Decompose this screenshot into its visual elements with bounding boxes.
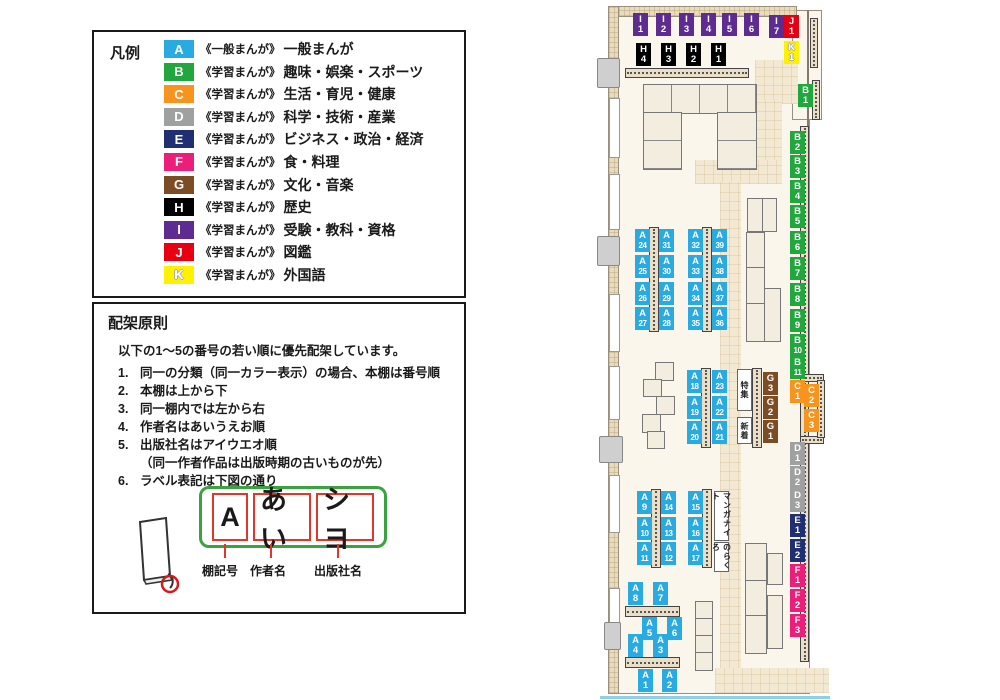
series-label: 《学習まんが》 [200,109,281,125]
shelf-block [745,580,767,617]
label-part-2: あい [253,493,311,541]
shelf-label-A10: A10 [637,517,652,540]
small-table [695,652,713,671]
rule-1: 1.同一の分類（同一カラー表示）の場合、本棚は番号順 [118,364,440,382]
category-badge-H: H [164,198,194,216]
shelf-label-A14: A14 [661,491,676,514]
series-label: 《学習まんが》 [200,222,281,238]
rule-text: 同一棚内では左から右 [140,400,265,418]
shelf-label-H2: H2 [686,43,701,66]
floor-map: I1I2I3I4I5I6H4H3H2H1I7J1K1B1B2B3B4B5B6B7… [595,0,840,700]
door [599,436,623,463]
category-label: ビジネス・政治・経済 [284,129,424,149]
shelf-label-I2: I2 [656,13,671,36]
shelf-label-D1: D1 [790,442,805,465]
shelf-strip [649,227,659,332]
shelf-block [762,198,777,232]
shelf-label-H4: H4 [636,43,651,66]
shelf-label-A8: A8 [628,582,643,605]
category-label: 生活・育児・健康 [284,84,396,104]
shelf-label-A23: A23 [712,370,727,393]
shelf-strip [625,657,680,668]
shelf-label-D2: D2 [790,466,805,489]
shelf-label-A22: A22 [712,396,727,419]
shelf-label-H1: H1 [711,43,726,66]
shelf-strip [701,368,711,448]
category-badge-C: C [164,85,194,103]
series-label: 《一般まんが》 [200,41,281,57]
shelf-label-A31: A31 [659,229,674,252]
shelf-label-A38: A38 [712,255,727,278]
principles-panel: 配架原則 以下の1～5の番号の若い順に優先配架しています。 1.同一の分類（同一… [92,302,466,614]
shelf-strip [812,80,820,120]
legend-item-K: K《学習まんが》外国語 [164,266,424,284]
path-entry [755,60,798,104]
shelf-label-C2: C2 [804,384,819,407]
series-label: 《学習まんが》 [200,244,281,260]
shelf-label-A18: A18 [687,370,702,393]
shelf-label-D3: D3 [790,489,805,512]
shelf-label-I6: I6 [744,13,759,36]
shelf-label-K1: K1 [784,41,799,64]
shelf-block [746,267,765,305]
shelf-label-A27: A27 [635,307,650,330]
shelf-label-H3: H3 [661,43,676,66]
shelf-label-B2: B2 [790,131,805,154]
shelf-label-A11: A11 [637,542,652,565]
manga-floor-map-page: 凡例 A《一般まんが》一般まんがB《学習まんが》趣味・娯楽・スポーツC《学習まん… [0,0,1000,700]
category-label: 一般まんが [284,39,354,59]
shelf-label-A13: A13 [661,517,676,540]
part-caption: 作者名 [250,562,286,579]
shelf-label-E2: E2 [790,539,805,562]
series-label: 《学習まんが》 [200,177,281,193]
label-diagram: Aあいシヨ 棚記号作者名出版社名 [94,484,460,608]
shelf-label-G2: G2 [763,396,778,419]
window [609,98,620,158]
legend-item-J: J《学習まんが》図鑑 [164,243,424,261]
shelf-label-A35: A35 [688,307,703,330]
leader-line [270,544,272,558]
door [604,622,621,650]
shelf-label-A2: A2 [662,669,677,692]
shelf-label-A39: A39 [712,229,727,252]
legend-rows: A《一般まんが》一般まんがB《学習まんが》趣味・娯楽・スポーツC《学習まんが》生… [164,40,424,289]
shelf-label-B9: B9 [790,309,805,332]
door [597,58,620,88]
rule-text: 出版社名はアイウエオ順 [140,436,277,454]
shelf-label-A24: A24 [635,229,650,252]
category-badge-K: K [164,266,194,284]
shelf-label-A7: A7 [653,582,668,605]
shelf-label-A17: A17 [688,542,703,565]
shelf-label-A6: A6 [667,617,682,640]
shelf-block [767,595,783,649]
legend-item-E: E《学習まんが》ビジネス・政治・経済 [164,130,424,148]
rule-number: 4. [118,418,140,436]
area-box-マンガナイト: マンガナイト [714,491,729,541]
shelf-strip [810,18,818,68]
rule-3: 3.同一棚内では左から右 [118,400,440,418]
shelf-label-B6: B6 [790,231,805,254]
shelf-label-B4: B4 [790,180,805,203]
rule-5-sub: （同一作者作品は出版時期の古いものが先） [118,454,440,472]
shelf-label-A1: A1 [638,669,653,692]
shelf-label-A26: A26 [635,282,650,305]
shelf-label-A19: A19 [687,396,702,419]
rule-number: 1. [118,364,140,382]
category-badge-F: F [164,153,194,171]
category-label: 外国語 [284,265,326,285]
shelf-label-G3: G3 [763,372,778,395]
shelf-label-B10: B10 [790,334,805,357]
shelf-label-E1: E1 [790,514,805,537]
shelf-label-B11: B11 [790,356,805,379]
shelf-label-A29: A29 [659,282,674,305]
series-label: 《学習まんが》 [200,131,281,147]
path-bottom [715,668,829,693]
label-part-1: A [212,493,248,541]
shelf-block [764,288,781,342]
shelf-strip [752,368,762,448]
shelf-label-A20: A20 [687,421,702,444]
shelf-strip [625,606,680,617]
table-group [717,112,757,170]
shelf-label-A16: A16 [688,517,703,540]
shelf-label-C1: C1 [790,380,805,403]
area-box-のらくろ: のらくろ [714,542,729,572]
category-label: 文化・音楽 [284,175,354,195]
category-badge-G: G [164,176,194,194]
leader-line [224,544,226,558]
legend-item-B: B《学習まんが》趣味・娯楽・スポーツ [164,63,424,81]
category-label: 趣味・娯楽・スポーツ [284,62,424,82]
shelf-label-A37: A37 [712,282,727,305]
series-label: 《学習まんが》 [200,86,281,102]
shelf-label-A21: A21 [712,421,727,444]
book-icon [132,516,188,594]
category-label: 科学・技術・産業 [284,107,396,127]
rule-text: 作者名はあいうえお順 [140,418,265,436]
category-badge-E: E [164,130,194,148]
legend-item-H: H《学習まんが》歴史 [164,198,424,216]
shelf-label-B3: B3 [790,155,805,178]
shelf-block [745,543,767,582]
shelf-label-A36: A36 [712,307,727,330]
series-label: 《学習まんが》 [200,199,281,215]
legend-panel: 凡例 A《一般まんが》一般まんがB《学習まんが》趣味・娯楽・スポーツC《学習まん… [92,30,466,298]
shelf-label-B8: B8 [790,283,805,306]
shelf-label-B7: B7 [790,257,805,280]
leader-line [337,544,339,558]
legend-title: 凡例 [110,42,140,63]
shelf-label-I1: I1 [633,13,648,36]
shelf-label-A4: A4 [628,634,643,657]
rule-sub-text: （同一作者作品は出版時期の古いものが先） [140,454,390,472]
legend-item-A: A《一般まんが》一般まんが [164,40,424,58]
table-group [643,84,757,114]
shelf-block [746,232,765,269]
shelf-label-F1: F1 [790,564,805,587]
window [609,174,620,230]
rule-number: 3. [118,400,140,418]
shelf-label-A33: A33 [688,255,703,278]
part-caption: 棚記号 [202,562,238,579]
shelf-label-F2: F2 [790,589,805,612]
shelf-label-B1: B1 [798,84,813,107]
map-bottom-line [600,696,830,699]
window [609,588,620,624]
principles-title: 配架原則 [108,312,168,333]
principles-intro: 以下の1～5の番号の若い順に優先配架しています。 [118,340,405,359]
shelf-block [746,303,765,342]
area-box-新着: 新着 [737,417,752,444]
legend-item-C: C《学習まんが》生活・育児・健康 [164,85,424,103]
shelf-strip [651,489,661,568]
door [597,236,620,266]
shelf-strip [625,68,749,78]
small-table [643,379,662,397]
shelf-label-F3: F3 [790,614,805,637]
legend-item-I: I《学習まんが》受験・教科・資格 [164,221,424,239]
shelf-label-A12: A12 [661,542,676,565]
category-badge-D: D [164,108,194,126]
shelf-block [745,615,767,654]
shelf-label-B5: B5 [790,205,805,228]
category-label: 受験・教科・資格 [284,220,396,240]
shelf-label-A30: A30 [659,255,674,278]
label-part-3: シヨ [316,493,374,541]
category-label: 食・料理 [284,152,340,172]
shelf-label-A9: A9 [637,491,652,514]
shelf-label-I5: I5 [722,13,737,36]
category-badge-B: B [164,63,194,81]
rule-4: 4.作者名はあいうえお順 [118,418,440,436]
rule-5: 5.出版社名はアイウエオ順 [118,436,440,454]
rule-number: 2. [118,382,140,400]
rule-text: 本棚は上から下 [140,382,228,400]
principles-rules: 1.同一の分類（同一カラー表示）の場合、本棚は番号順2.本棚は上から下3.同一棚… [118,364,440,490]
shelf-strip [702,227,712,332]
legend-item-G: G《学習まんが》文化・音楽 [164,176,424,194]
shelf-block [747,198,763,232]
rule-number: 5. [118,436,140,454]
window [609,294,620,352]
rule-text: 同一の分類（同一カラー表示）の場合、本棚は番号順 [140,364,440,382]
category-label: 歴史 [284,197,312,217]
small-table [647,431,665,449]
category-badge-I: I [164,221,194,239]
category-label: 図鑑 [284,242,312,262]
shelf-label-G1: G1 [763,420,778,443]
shelf-label-J1: J1 [784,15,799,38]
small-table [656,396,675,415]
shelf-label-A3: A3 [653,634,668,657]
legend-item-F: F《学習まんが》食・料理 [164,153,424,171]
category-badge-J: J [164,243,194,261]
category-badge-A: A [164,40,194,58]
shelf-label-I4: I4 [701,13,716,36]
shelf-label-C3: C3 [804,409,819,432]
shelf-label-A28: A28 [659,307,674,330]
rule-2: 2.本棚は上から下 [118,382,440,400]
shelf-label-A32: A32 [688,229,703,252]
shelf-label-A15: A15 [688,491,703,514]
window [609,475,620,533]
legend-item-D: D《学習まんが》科学・技術・産業 [164,108,424,126]
part-caption: 出版社名 [314,562,362,579]
series-label: 《学習まんが》 [200,267,281,283]
shelf-block [767,553,783,585]
series-label: 《学習まんが》 [200,64,281,80]
series-label: 《学習まんが》 [200,154,281,170]
label-sample: Aあいシヨ [199,486,387,548]
table-group [643,112,682,170]
window [609,366,620,420]
shelf-label-I7: I7 [769,15,784,38]
area-box-特集: 特集 [737,369,752,411]
shelf-label-A25: A25 [635,255,650,278]
shelf-label-A34: A34 [688,282,703,305]
shelf-label-I3: I3 [679,13,694,36]
